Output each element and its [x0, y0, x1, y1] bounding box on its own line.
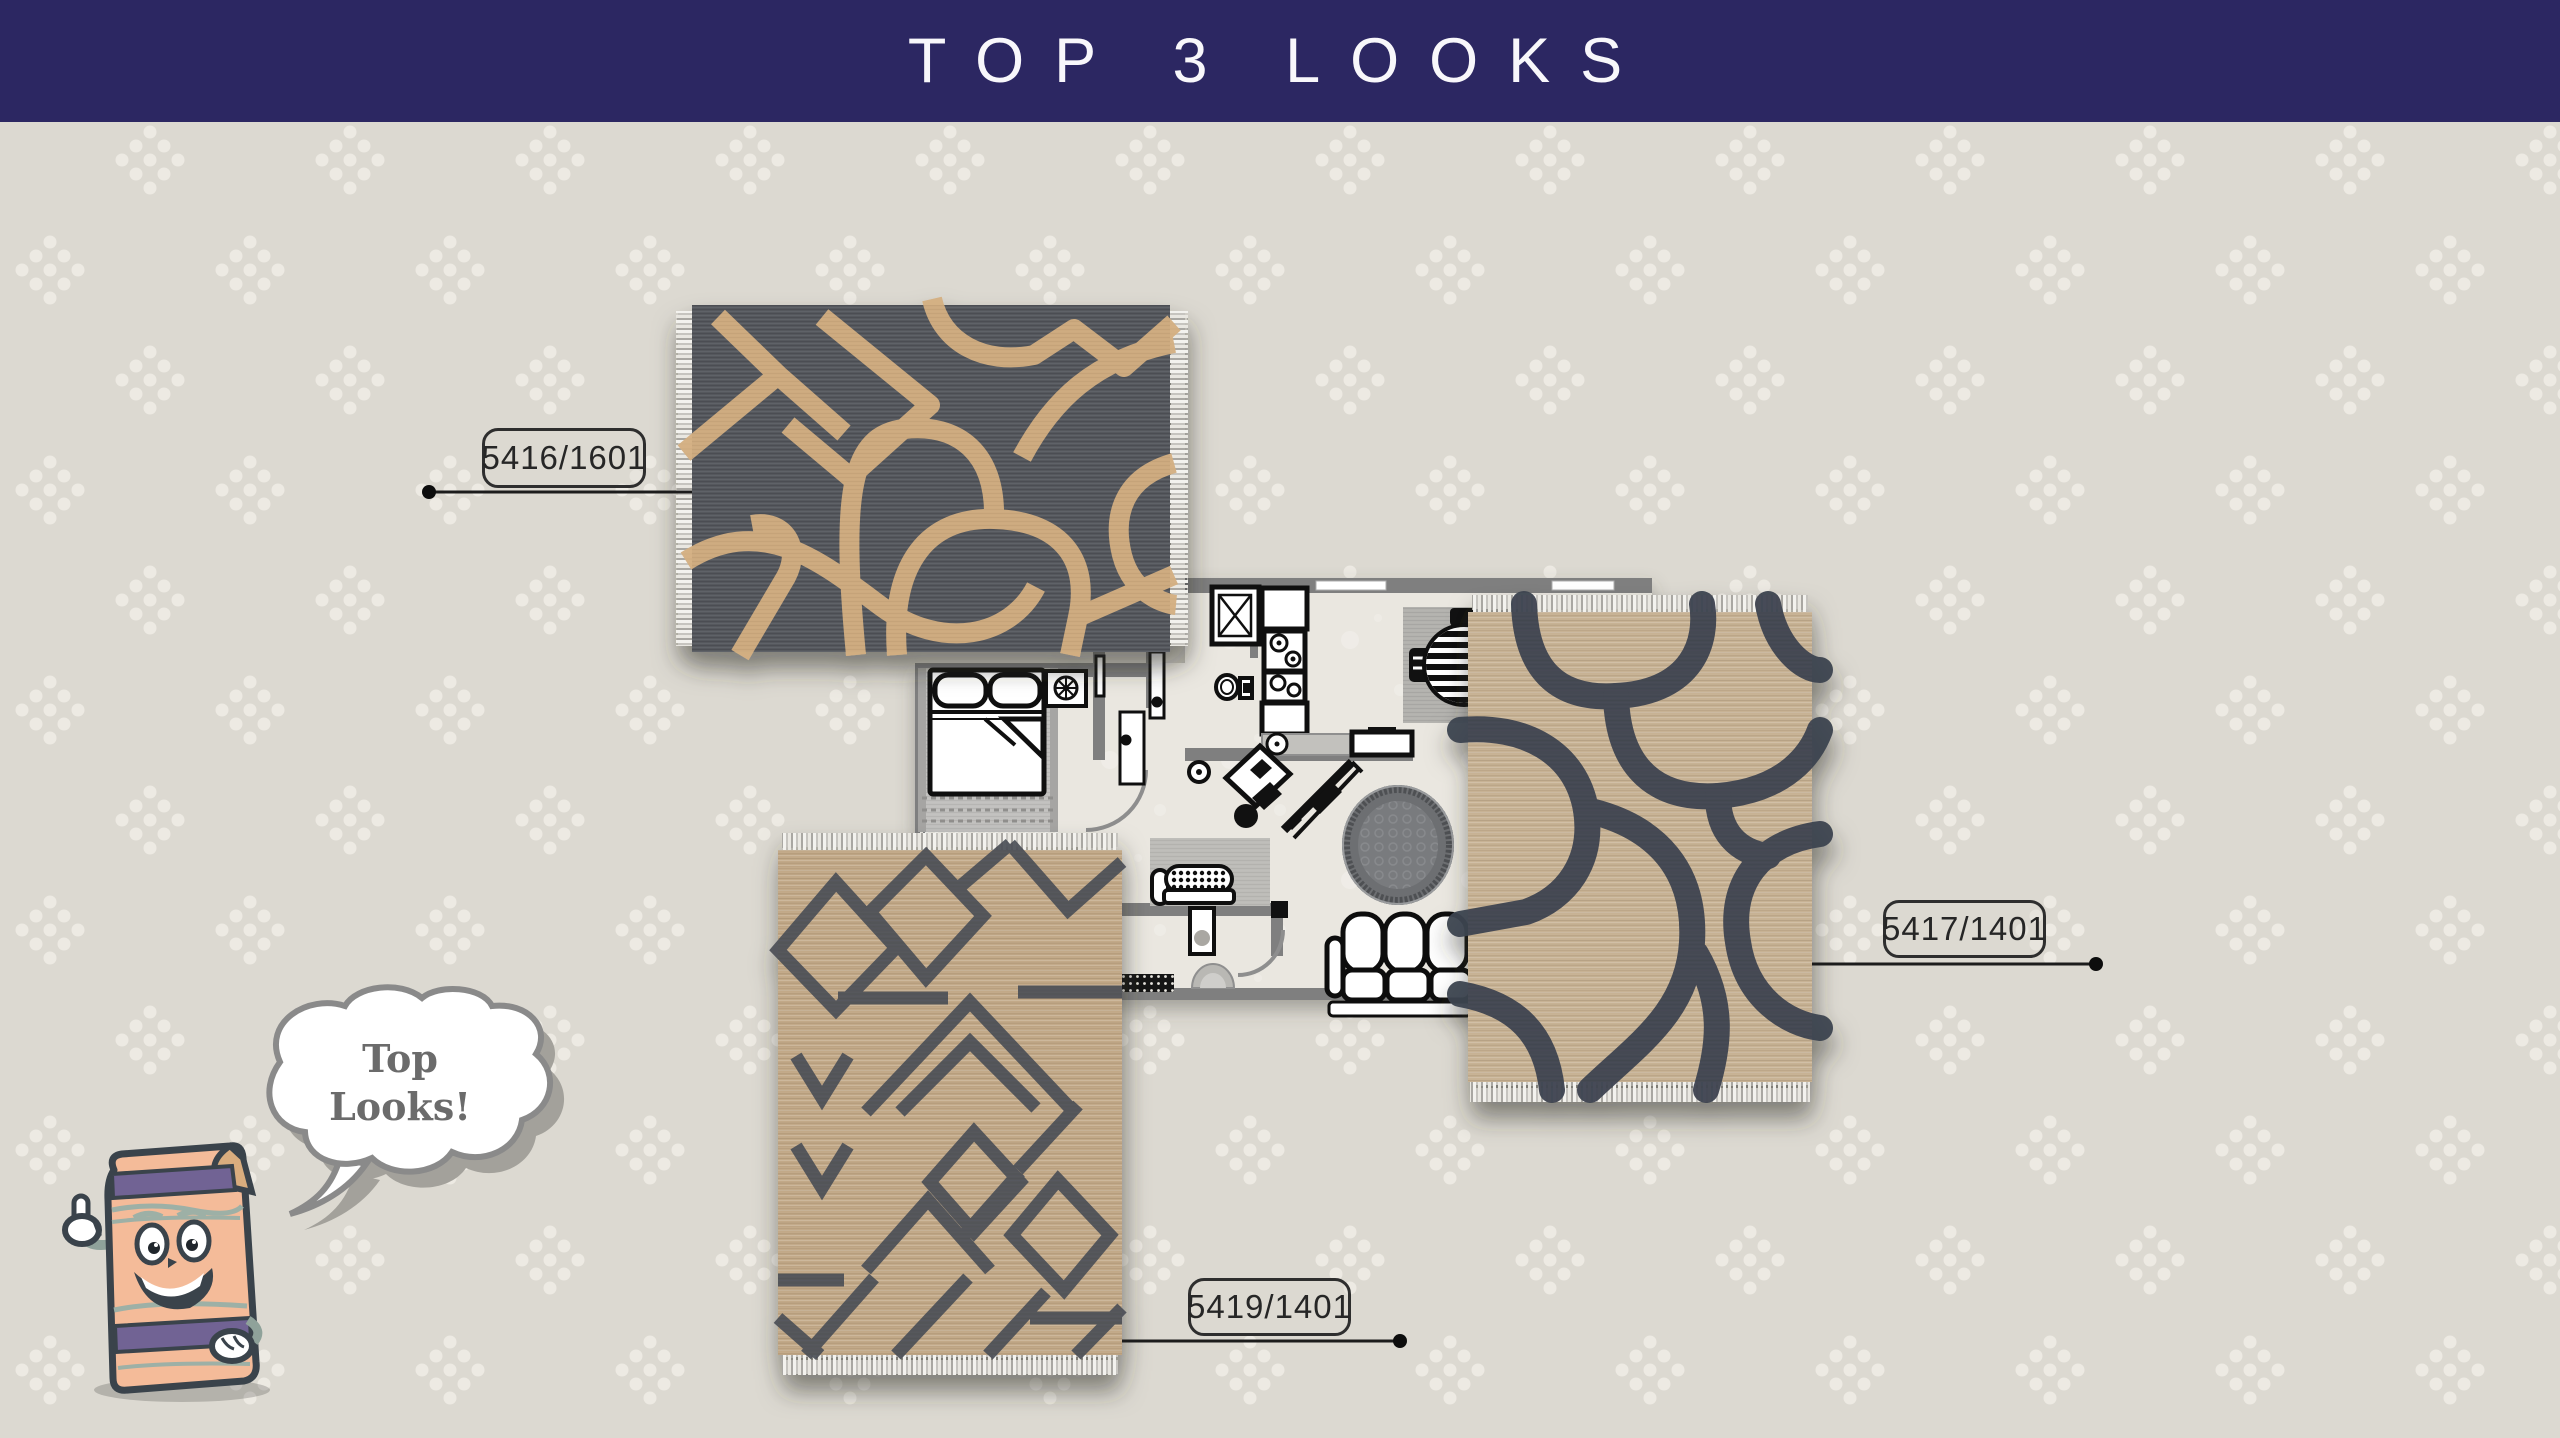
double-bed — [930, 670, 1044, 794]
stool — [1189, 762, 1209, 782]
rug-fringe — [676, 311, 692, 646]
rug-code-text: 5416/1601 — [482, 439, 647, 477]
rug-swatch-5416-1601 — [676, 299, 1188, 655]
console-table — [1190, 908, 1214, 954]
leader-dot-5416 — [422, 485, 436, 499]
kitchen-island — [1352, 727, 1412, 755]
leader-dot-5417 — [2089, 957, 2103, 971]
kitchen-counter — [1262, 734, 1350, 755]
tufted-bench — [1152, 866, 1234, 904]
speech-text-line1: Top — [362, 1036, 438, 1081]
doormat — [1118, 974, 1174, 992]
stove — [1264, 631, 1305, 671]
callout-label-5416-1601: 5416/1601 — [482, 428, 646, 488]
rug-code-text: 5417/1401 — [1882, 910, 2047, 948]
lookbook-page: Top Looks! — [0, 0, 2560, 1438]
speech-text-line2: Looks! — [329, 1084, 471, 1129]
callout-label-5417-1401: 5417/1401 — [1883, 900, 2046, 958]
rug-code-text: 5419/1401 — [1187, 1288, 1352, 1326]
round-ornate-rug — [1342, 785, 1454, 905]
mascot-right-glove — [212, 1331, 252, 1361]
leader-dot-5419 — [1393, 1334, 1407, 1348]
rug-swatch-5419-1401 — [778, 833, 1122, 1375]
door-hinge-block — [1271, 901, 1288, 918]
kitchen-sink — [1264, 672, 1305, 702]
nightstand — [1046, 671, 1086, 706]
page-title: TOP 3 LOOKS — [908, 25, 1652, 97]
rug-fringe — [782, 833, 1118, 850]
callout-label-5419-1401: 5419/1401 — [1188, 1278, 1351, 1336]
rug-fringe — [782, 1355, 1118, 1375]
rug-swatch-5417-1401 — [1460, 595, 1820, 1102]
shower — [1212, 587, 1259, 644]
scene-canvas: Top Looks! — [0, 0, 2560, 1438]
fridge — [1262, 588, 1307, 629]
toilet — [1216, 675, 1252, 699]
kitchen-cabinet — [1262, 703, 1307, 734]
header-bar: TOP 3 LOOKS — [0, 0, 2560, 122]
rug-fringe — [1470, 1082, 1810, 1102]
